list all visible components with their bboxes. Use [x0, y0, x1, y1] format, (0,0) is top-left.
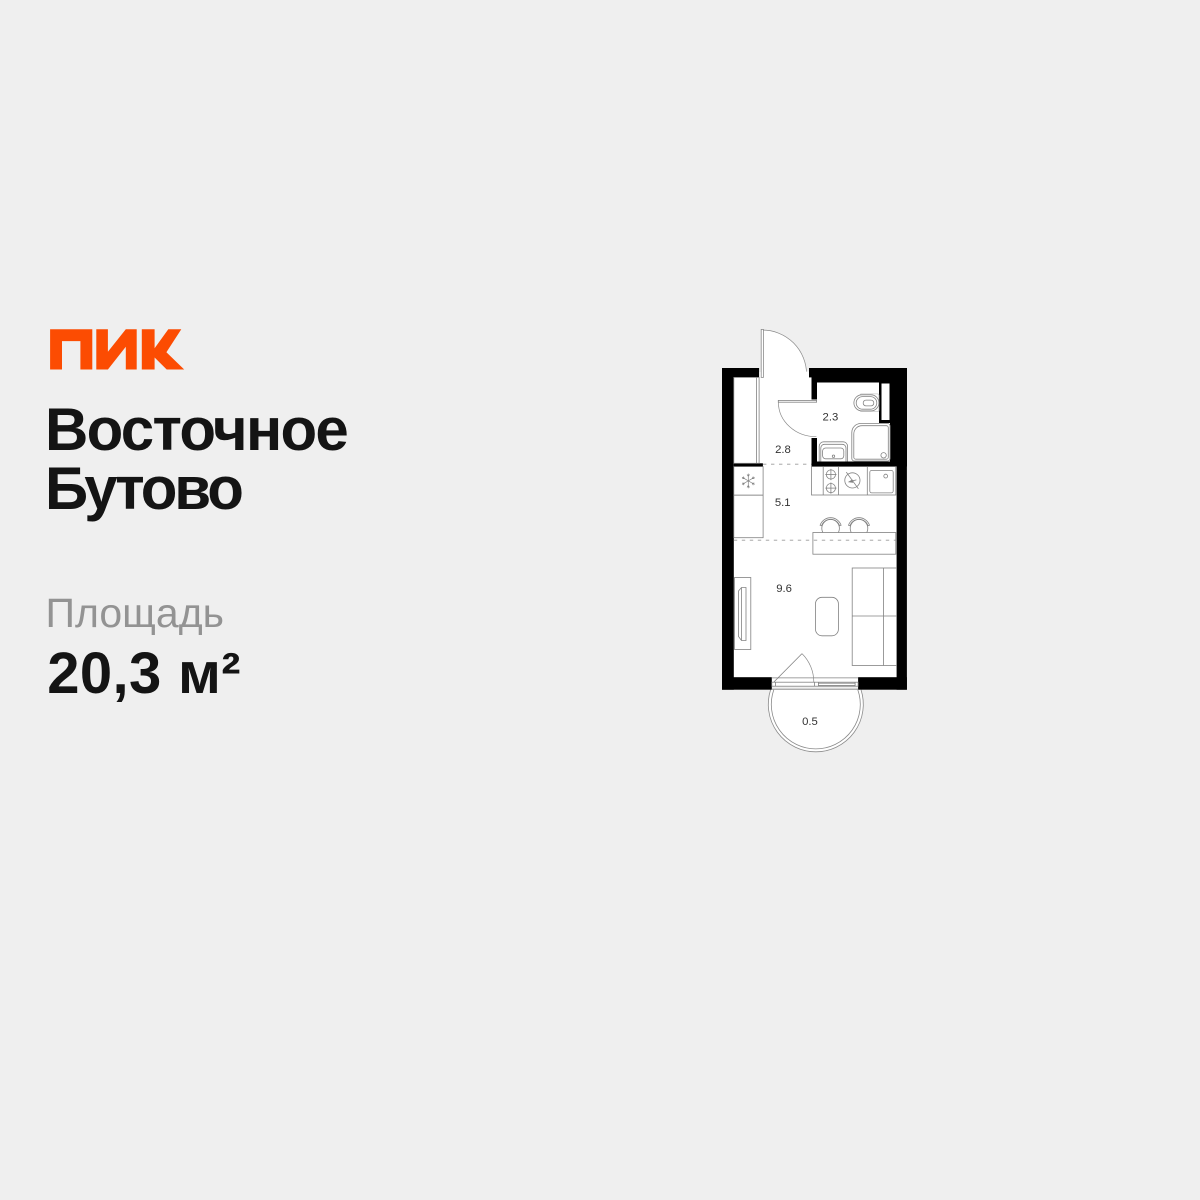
svg-text:2.3: 2.3 — [823, 412, 839, 424]
svg-text:9.6: 9.6 — [776, 583, 792, 595]
svg-text:2.8: 2.8 — [775, 444, 791, 456]
svg-text:0.5: 0.5 — [802, 716, 818, 728]
svg-text:5.1: 5.1 — [775, 497, 791, 509]
